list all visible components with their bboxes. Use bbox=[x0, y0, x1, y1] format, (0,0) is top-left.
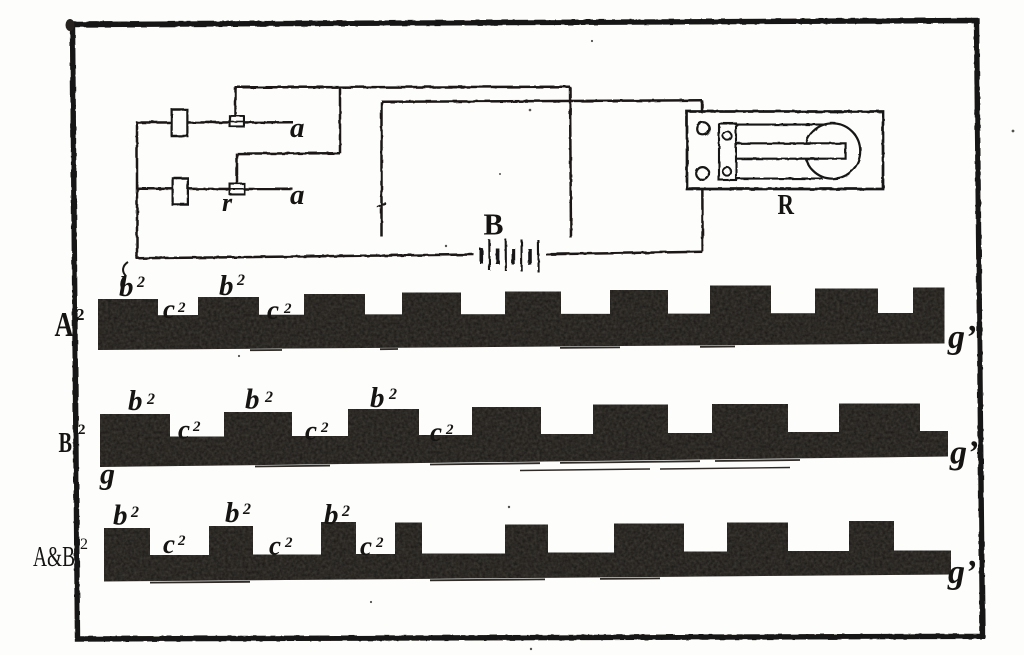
svg-text:g’: g’ bbox=[947, 554, 976, 591]
svg-text:2: 2 bbox=[80, 536, 88, 553]
svg-text:2: 2 bbox=[236, 272, 245, 289]
svg-text:2: 2 bbox=[192, 419, 201, 435]
svg-text:b: b bbox=[324, 499, 339, 531]
svg-text:2: 2 bbox=[76, 305, 85, 324]
svg-text:c: c bbox=[267, 295, 279, 325]
svg-text:c: c bbox=[163, 294, 175, 324]
svg-text:2: 2 bbox=[136, 274, 145, 291]
svg-text:b: b bbox=[370, 382, 385, 414]
svg-text:b: b bbox=[113, 500, 128, 532]
svg-text:2: 2 bbox=[130, 504, 139, 521]
svg-text:R: R bbox=[778, 189, 795, 221]
svg-text:c: c bbox=[178, 415, 190, 445]
svg-text:2: 2 bbox=[264, 389, 273, 406]
svg-text:A&B: A&B bbox=[33, 541, 75, 573]
svg-text:B: B bbox=[59, 427, 73, 459]
svg-text:c: c bbox=[430, 417, 442, 447]
svg-text:B: B bbox=[484, 207, 504, 242]
svg-text:c: c bbox=[360, 531, 372, 561]
svg-text:2: 2 bbox=[320, 420, 329, 436]
svg-text:b: b bbox=[128, 385, 143, 417]
svg-text:2: 2 bbox=[445, 422, 454, 438]
svg-text:2: 2 bbox=[284, 535, 293, 551]
svg-text:g’: g’ bbox=[949, 435, 978, 472]
svg-text:b: b bbox=[245, 384, 260, 416]
svg-text:b: b bbox=[225, 497, 240, 529]
svg-text:2: 2 bbox=[341, 503, 350, 520]
svg-text:b: b bbox=[219, 270, 234, 302]
svg-text:A: A bbox=[55, 305, 75, 344]
svg-text:b: b bbox=[119, 271, 134, 303]
svg-text:a: a bbox=[290, 179, 305, 211]
svg-text:g’: g’ bbox=[947, 319, 976, 356]
svg-text:2: 2 bbox=[388, 386, 397, 403]
svg-text:2: 2 bbox=[283, 301, 292, 317]
svg-text:r: r bbox=[222, 188, 233, 217]
svg-text:2: 2 bbox=[146, 391, 155, 408]
svg-text:c: c bbox=[305, 416, 317, 446]
svg-text:2: 2 bbox=[78, 422, 86, 438]
svg-text:c: c bbox=[163, 529, 175, 559]
svg-text:2: 2 bbox=[177, 533, 186, 549]
svg-text:c: c bbox=[269, 531, 281, 561]
svg-text:2: 2 bbox=[375, 535, 384, 551]
svg-text:2: 2 bbox=[242, 501, 251, 518]
svg-text:2: 2 bbox=[177, 300, 186, 316]
svg-text:g: g bbox=[99, 458, 115, 491]
svg-text:a: a bbox=[290, 112, 305, 144]
